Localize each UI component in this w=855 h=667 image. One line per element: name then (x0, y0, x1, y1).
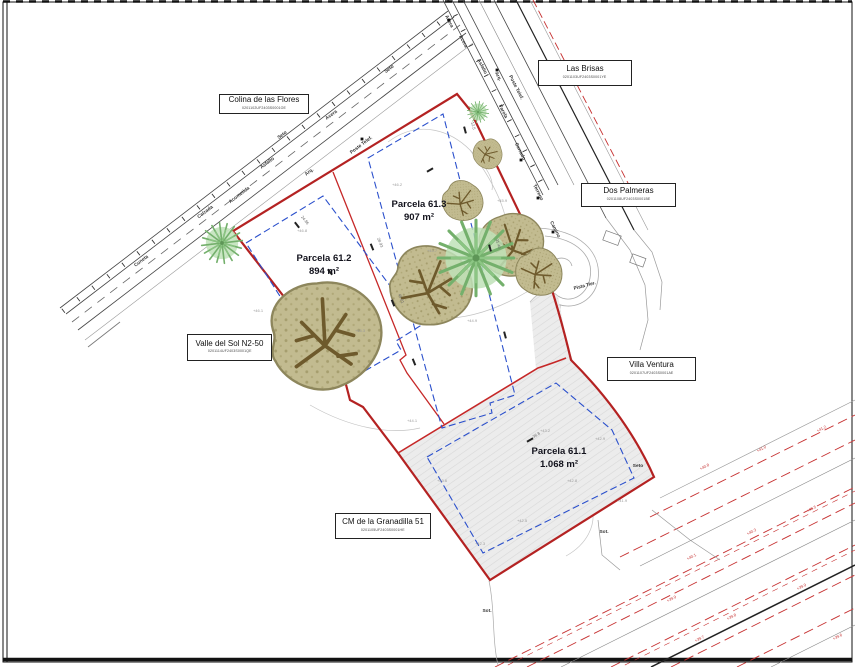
annotation-label: +44.9 (467, 318, 478, 323)
annotation-label: +39.8 (726, 612, 738, 621)
street-box-cm-granadilla: CM de la Granadilla 51 0201105UF2403S000… (335, 513, 431, 539)
annotation-label: Acometida (228, 185, 251, 205)
annotation-label: +41.2 (816, 424, 828, 433)
annotation-label: Acera (457, 34, 469, 49)
annotation-label: 24.86 (300, 215, 311, 227)
street-name: Dos Palmeras (603, 187, 653, 195)
annotation-label: +45.7 (427, 248, 438, 253)
annotation-label: +40.1 (686, 552, 698, 561)
annotation-label: +42.3 (475, 541, 486, 546)
annotation-label: Sot. (599, 529, 608, 535)
annotation-label: Poste Telef. (507, 74, 524, 100)
annotation-label: +44.1 (407, 418, 418, 423)
plan-drawing: CunetaCalzadaAsfaltoAceraSetoSetoPoste T… (0, 0, 855, 667)
cadastral-code: 0201107UF2403S0001AE (630, 371, 674, 375)
pole-symbol (448, 19, 451, 22)
parcel-area: 894 m² (297, 265, 352, 278)
parcel-area: 1.068 m² (532, 458, 587, 471)
parcel-area: 907 m² (392, 211, 447, 224)
palm-tree-top (464, 98, 493, 127)
annotation-label: +39.9 (666, 594, 678, 603)
annotation-label: 12.5 (470, 121, 477, 131)
annotation-label: Seto (276, 130, 288, 141)
annotation-label: +41.9 (617, 498, 628, 503)
annotation-label: +42.9 (595, 436, 606, 441)
annotation-label: Seto (383, 64, 395, 75)
page-frame (3, 2, 852, 663)
annotation-label: Arq. (304, 167, 315, 178)
dimension-tick (463, 126, 467, 133)
annotation-label: +43.2 (540, 428, 551, 433)
annotation-label: +39.7 (694, 634, 706, 643)
parcel-611-area (398, 291, 654, 580)
dimension-tick (370, 243, 374, 250)
annotation-label: +41.0 (756, 444, 768, 453)
annotation-label: 28.93 (376, 237, 385, 249)
cadastral-code: 0201108UF2403S0001BE (607, 197, 651, 201)
street-box-valle-del-sol: Valle del Sol N2-50 0201114UF2403S0001QE (187, 334, 272, 361)
annotation-label: Farola (497, 104, 509, 120)
street-name: Villa Ventura (629, 361, 674, 369)
street-box-las-brisas: Las Brisas 0201103UF2403S0001YE (538, 60, 632, 86)
pole-symbol (496, 69, 499, 72)
pole-symbol (361, 138, 364, 141)
cadastral-plan-page: CunetaCalzadaAsfaltoAceraSetoSetoPoste T… (0, 0, 855, 667)
parcel-label-613: Parcela 61.3 907 m² (392, 198, 447, 224)
cadastral-code: 0201105UF2403S0001HE (361, 528, 405, 532)
annotation-label: +43.6 (437, 478, 448, 483)
cadastral-code: 0201102UF2403S0001OE (242, 106, 286, 110)
annotation-label: +40.5 (806, 504, 818, 513)
annotation-label: Cerrado (513, 142, 527, 161)
annotation-label: +46.1 (253, 308, 264, 313)
cadastral-code: 0201103UF2403S0001YE (563, 75, 607, 79)
annotation-label: +40.8 (699, 462, 711, 471)
dimension-tick (503, 331, 507, 338)
street-name: Valle del Sol N2-50 (196, 340, 264, 348)
street-box-dos-palmeras: Dos Palmeras 0201108UF2403S0001BE (581, 183, 676, 207)
pole-symbol (552, 231, 555, 234)
street-box-villa-ventura: Villa Ventura 0201107UF2403S0001AE (607, 357, 696, 381)
annotation-label: +45.9 (497, 198, 508, 203)
annotation-label: +42.8 (567, 478, 578, 483)
parcel-label-612: Parcela 61.2 894 m² (297, 252, 352, 278)
cadastral-code: 0201114UF2403S0001QE (208, 349, 252, 353)
annotation-label: Seto (633, 463, 643, 469)
annotation-label: +42.5 (517, 518, 528, 523)
dimension-tick (412, 358, 416, 365)
palm-tree-left (198, 219, 247, 268)
olive-tree-tiny (471, 137, 505, 171)
parcel-name: Parcela 61.3 (392, 198, 447, 211)
annotation-label: +45.3 (355, 328, 366, 333)
street-name: Colina de las Flores (229, 96, 300, 104)
street-name: CM de la Granadilla 51 (342, 518, 424, 526)
dimension-tick (426, 167, 433, 172)
olive-tree-large (272, 282, 382, 389)
annotation-label: Sot. (482, 608, 491, 614)
street-box-colina-de-las-flores: Colina de las Flores 0201102UF2403S0001O… (219, 94, 309, 114)
parcel-name: Parcela 61.1 (532, 445, 587, 458)
annotation-label: +39.6 (832, 632, 844, 641)
parcel-label-611: Parcela 61.1 1.068 m² (532, 445, 587, 471)
annotation-label: +40.3 (746, 527, 758, 536)
annotation-label: +46.8 (297, 228, 308, 233)
street-name: Las Brisas (566, 65, 603, 73)
annotation-label: Asfalto (259, 156, 276, 171)
parcel-name: Parcela 61.2 (297, 252, 352, 265)
annotation-label: Acera (443, 14, 455, 29)
annotation-label: +46.2 (392, 182, 403, 187)
pole-symbol (537, 197, 540, 200)
pole-symbol (520, 159, 523, 162)
annotation-label: Arq. (493, 71, 503, 82)
palm-tree-main (438, 220, 514, 296)
